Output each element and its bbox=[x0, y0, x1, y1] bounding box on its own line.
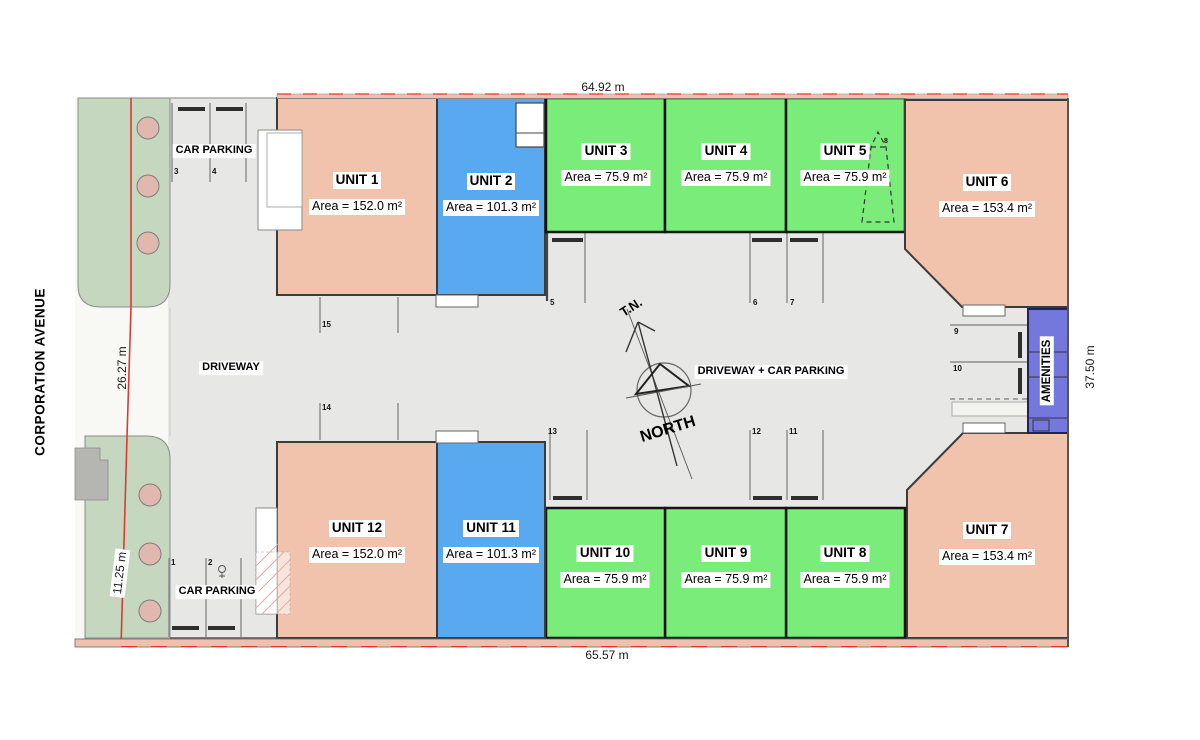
unit-7-area: Area = 153.4 m² bbox=[939, 549, 1035, 565]
unit-3-area: Area = 75.9 m² bbox=[561, 170, 650, 186]
unit-12-label: UNIT 12 Area = 152.0 m² bbox=[309, 519, 405, 563]
unit-8-label: UNIT 8 Area = 75.9 m² bbox=[800, 544, 889, 588]
unit-9-name: UNIT 9 bbox=[702, 545, 751, 562]
parking-space-15-number: 15 bbox=[322, 320, 331, 329]
driveway-car-parking-label: DRIVEWAY + CAR PARKING bbox=[695, 365, 848, 379]
unit-4-label: UNIT 4 Area = 75.9 m² bbox=[681, 142, 770, 186]
unit-2-area: Area = 101.3 m² bbox=[443, 200, 539, 216]
top-wall-strip bbox=[277, 94, 1068, 99]
dimension-left-upper: 26.27 m bbox=[115, 346, 129, 389]
unit-7-label: UNIT 7 Area = 153.4 m² bbox=[939, 521, 1035, 565]
unit-11-door bbox=[436, 431, 478, 443]
tree-icon bbox=[139, 543, 161, 565]
parking-space-4-number: 4 bbox=[212, 167, 216, 176]
unit-9-area: Area = 75.9 m² bbox=[681, 572, 770, 588]
unit-12-area: Area = 152.0 m² bbox=[309, 547, 405, 563]
unit-4-name: UNIT 4 bbox=[702, 143, 751, 160]
parking-space-7-number: 7 bbox=[790, 298, 794, 307]
unit-8-area: Area = 75.9 m² bbox=[800, 572, 889, 588]
parking-space-8-number: 8 bbox=[884, 138, 888, 145]
unit-2-door bbox=[436, 295, 478, 307]
unit-1-name: UNIT 1 bbox=[333, 172, 382, 189]
driveway-label: DRIVEWAY bbox=[199, 361, 263, 375]
unit-7-name: UNIT 7 bbox=[963, 522, 1012, 539]
right-parking-pad bbox=[952, 402, 1028, 416]
unit-11-area: Area = 101.3 m² bbox=[443, 547, 539, 563]
unit-3-name: UNIT 3 bbox=[582, 143, 631, 160]
unit-6-name: UNIT 6 bbox=[963, 174, 1012, 191]
unit-9-label: UNIT 9 Area = 75.9 m² bbox=[681, 544, 770, 588]
unit-2-name: UNIT 2 bbox=[467, 173, 516, 190]
tree-icon bbox=[137, 117, 159, 139]
unit-11-label: UNIT 11 Area = 101.3 m² bbox=[443, 519, 539, 563]
unit-6-label: UNIT 6 Area = 153.4 m² bbox=[939, 173, 1035, 217]
parking-space-9-number: 9 bbox=[954, 327, 958, 336]
tree-icon bbox=[137, 175, 159, 197]
unit-2-stair bbox=[516, 103, 544, 147]
unit-5-area: Area = 75.9 m² bbox=[800, 170, 889, 186]
unit-1-area: Area = 152.0 m² bbox=[309, 199, 405, 215]
street-name: CORPORATION AVENUE bbox=[33, 288, 48, 456]
amenities-label: AMENITIES bbox=[1040, 337, 1054, 406]
stair-top-left-inner bbox=[267, 133, 302, 207]
parking-space-13-number: 13 bbox=[548, 427, 557, 436]
dimension-top: 64.92 m bbox=[581, 80, 624, 94]
parking-space-11-number: 11 bbox=[789, 427, 797, 436]
car-parking-bottom-label: CAR PARKING bbox=[176, 585, 259, 599]
unit-12-name: UNIT 12 bbox=[329, 520, 385, 537]
unit-4-area: Area = 75.9 m² bbox=[681, 170, 770, 186]
site-plan-drawing bbox=[0, 0, 1200, 740]
unit-7-door bbox=[963, 423, 1005, 433]
tree-icon bbox=[137, 232, 159, 254]
parking-space-10-number: 10 bbox=[953, 364, 962, 373]
car-parking-top-label: CAR PARKING bbox=[173, 144, 256, 158]
unit-5-label: UNIT 5 Area = 75.9 m² bbox=[800, 142, 889, 186]
unit-6-area: Area = 153.4 m² bbox=[939, 201, 1035, 217]
parking-space-5-number: 5 bbox=[550, 298, 554, 307]
parking-space-3-number: 3 bbox=[174, 167, 178, 176]
parking-space-2-number: 2 bbox=[208, 558, 212, 567]
unit-8-name: UNIT 8 bbox=[821, 545, 870, 562]
tree-icon bbox=[139, 484, 161, 506]
site-plan: CORPORATION AVENUE 64.92 m 65.57 m 26.27… bbox=[0, 0, 1200, 740]
parking-space-6-number: 6 bbox=[753, 298, 757, 307]
parking-space-12-number: 12 bbox=[752, 427, 761, 436]
unit-10-area: Area = 75.9 m² bbox=[560, 572, 649, 588]
parking-space-14-number: 14 bbox=[322, 403, 331, 412]
bottom-wall-strip bbox=[75, 639, 1068, 647]
unit-2-label: UNIT 2 Area = 101.3 m² bbox=[443, 172, 539, 216]
unit-10-label: UNIT 10 Area = 75.9 m² bbox=[560, 544, 649, 588]
tree-icon bbox=[139, 600, 161, 622]
unit-11-name: UNIT 11 bbox=[463, 520, 519, 537]
unit-5-name: UNIT 5 bbox=[821, 143, 870, 160]
dimension-bottom: 65.57 m bbox=[585, 648, 628, 662]
parking-space-1-number: 1 bbox=[171, 558, 175, 567]
unit-6-door bbox=[963, 305, 1005, 316]
unit-3-label: UNIT 3 Area = 75.9 m² bbox=[561, 142, 650, 186]
dimension-right: 37.50 m bbox=[1083, 345, 1097, 388]
unit-10-name: UNIT 10 bbox=[577, 545, 633, 562]
unit-1-label: UNIT 1 Area = 152.0 m² bbox=[309, 171, 405, 215]
